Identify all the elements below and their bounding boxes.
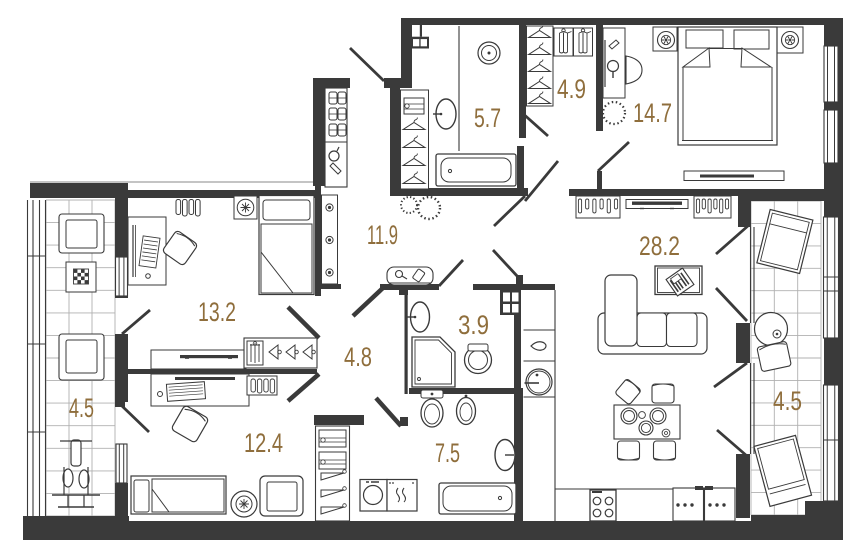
svg-text:12.4: 12.4 xyxy=(244,428,283,458)
svg-text:4.5: 4.5 xyxy=(773,386,802,416)
svg-text:14.7: 14.7 xyxy=(633,98,672,128)
svg-text:4.9: 4.9 xyxy=(557,74,586,104)
svg-text:3.9: 3.9 xyxy=(458,310,489,340)
svg-text:7.5: 7.5 xyxy=(435,438,460,468)
svg-text:13.2: 13.2 xyxy=(198,297,236,327)
svg-text:11.9: 11.9 xyxy=(367,220,398,250)
svg-text:4.5: 4.5 xyxy=(69,393,94,423)
svg-text:28.2: 28.2 xyxy=(639,231,680,261)
svg-text:4.8: 4.8 xyxy=(344,342,372,372)
svg-text:5.7: 5.7 xyxy=(474,103,501,133)
